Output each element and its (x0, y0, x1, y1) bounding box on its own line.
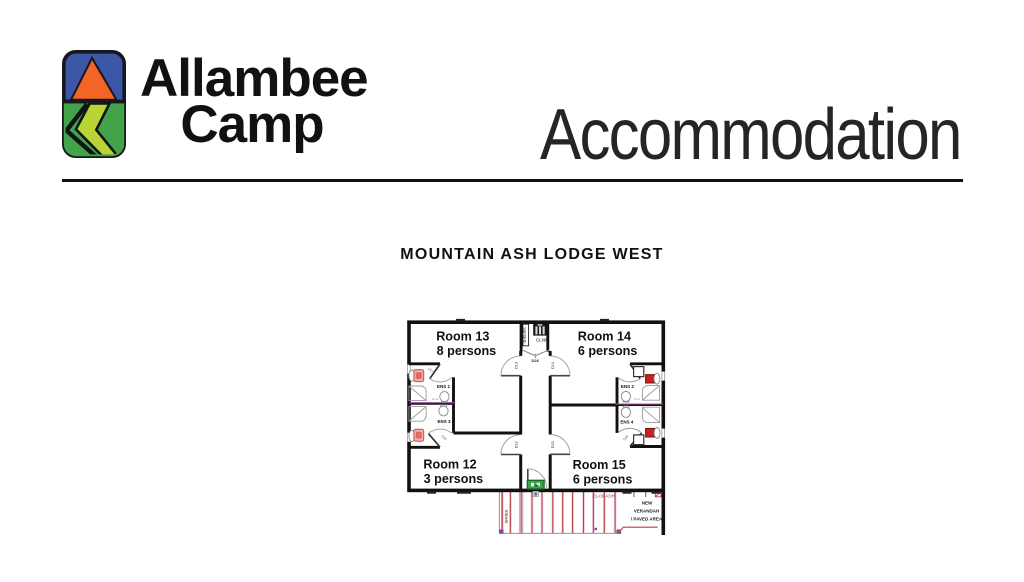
svg-text:SHOES: SHOES (504, 509, 509, 523)
svg-text:D13: D13 (514, 362, 518, 369)
svg-text:SHELVES: SHELVES (523, 327, 527, 343)
svg-text:D14: D14 (551, 362, 555, 369)
svg-text:ENS 2: ENS 2 (621, 384, 635, 389)
svg-text:D12: D12 (514, 441, 518, 448)
svg-text:Room 12: Room 12 (423, 457, 476, 471)
svg-text:/ PAVED AREA: / PAVED AREA (631, 517, 663, 522)
svg-text:8 persons: 8 persons (437, 344, 497, 358)
svg-text:6 persons: 6 persons (578, 344, 638, 358)
svg-text:21-09 ADH: 21-09 ADH (593, 493, 615, 498)
svg-text:Room 13: Room 13 (436, 330, 489, 344)
svg-text:ENS 4: ENS 4 (620, 420, 634, 425)
svg-text:VERANDAH: VERANDAH (634, 509, 660, 514)
svg-text:6 persons: 6 persons (573, 472, 633, 486)
svg-text:Room 15: Room 15 (573, 458, 626, 472)
svg-text:D15: D15 (551, 441, 555, 448)
svg-text:CLNR: CLNR (536, 337, 549, 342)
svg-text:Room 14: Room 14 (578, 330, 631, 344)
svg-text:H.Os: H.Os (432, 397, 439, 401)
svg-text:D16: D16 (441, 434, 448, 441)
svg-text:NEW: NEW (642, 501, 653, 506)
svg-text:3 persons: 3 persons (424, 472, 484, 486)
svg-text:ENS 1: ENS 1 (437, 384, 451, 389)
svg-text:P.Os: P.Os (634, 397, 640, 401)
svg-text:D26: D26 (532, 358, 540, 363)
svg-text:ENS 3: ENS 3 (437, 419, 451, 424)
svg-text:D19: D19 (622, 434, 629, 441)
